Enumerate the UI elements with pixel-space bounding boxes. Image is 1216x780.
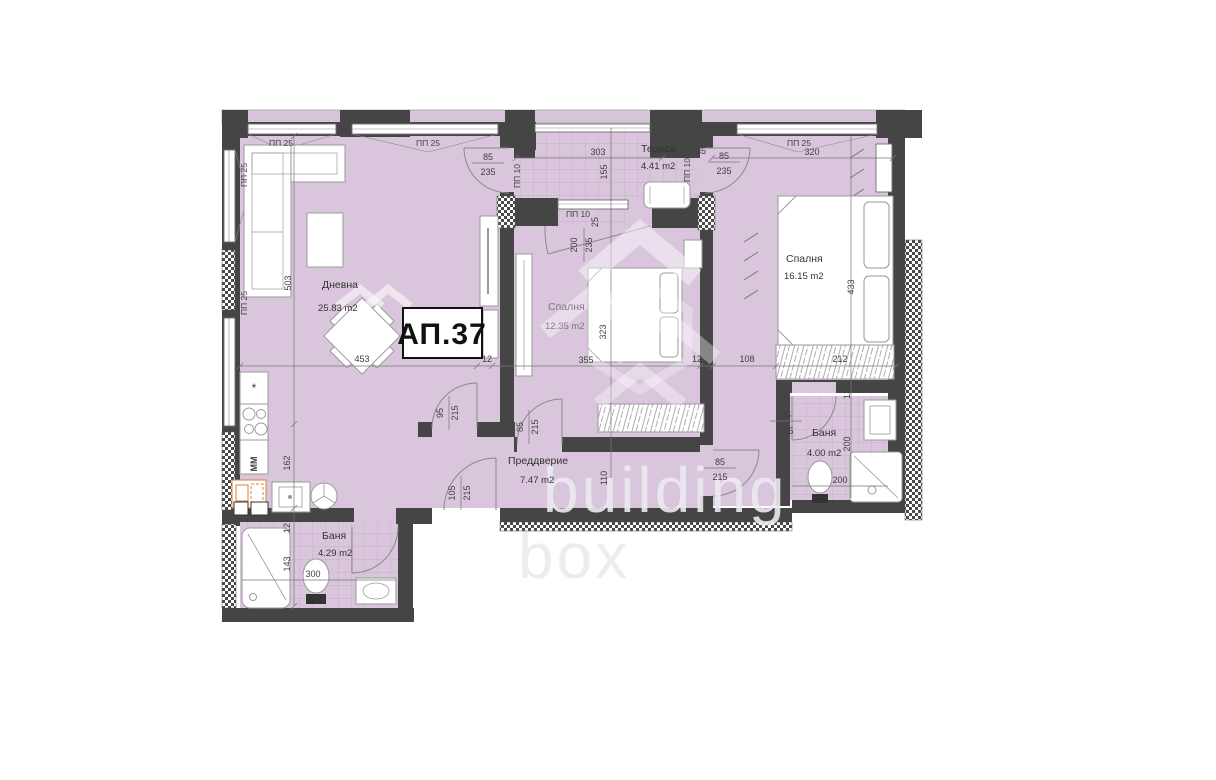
wardrobe-bedroom2 [598,404,704,432]
dim-155: 155 [599,164,609,179]
door-width-85: 85 [715,457,725,467]
door-width-105: 105 [447,485,457,500]
dim-303: 303 [590,147,605,157]
top-ledge [222,110,905,123]
pier-top-left-corner [222,110,248,138]
bath1-name: Баня [812,427,836,439]
dim-110: 110 [599,471,609,485]
wall-bath2-right [398,514,413,622]
kitchen-cabinet [251,502,268,515]
bath2-toilet-tank [306,594,326,604]
door-width-85: 85 [515,422,525,432]
dim-200: 200 [842,436,852,451]
insulation-right-center-block [698,196,715,230]
pp10-label: ПП 10 [566,209,590,219]
opening-hall-bedroom2 [517,437,562,452]
bath1-area: 4.00 m2 [807,448,841,459]
watermark-text-line1: building [543,454,788,526]
dim-143: 143 [282,556,292,571]
bedroom2-name: Спалня [548,301,585,313]
fridge-mark: * [252,381,257,395]
bedroom1-name: Спалня [786,253,823,265]
wall-hall-stub [418,422,432,437]
kitchen-cabinet [234,502,248,515]
kitchen-sink-drain [289,496,292,499]
pp25-label: ПП 25 [239,163,249,187]
hall-name: Преддверие [508,455,568,467]
window-terrace-pp10 [558,200,628,209]
door-height-235: 235 [480,167,495,177]
wall-terrace-bottom-left [514,198,558,226]
opening-hall-bath2 [354,508,396,522]
insulation-right [905,240,922,520]
dim-25: 25 [590,217,600,227]
bath1-toilet [808,461,832,493]
dim-162: 162 [282,455,292,470]
dim-453: 453 [354,354,369,364]
door-height-215: 215 [462,485,472,500]
dim-320: 320 [804,147,819,157]
hall-area: 7.47 m2 [520,475,554,486]
floor-plan-drawing: building box АП.37 Дневна 25.83 m2 Терас… [0,0,1216,780]
dishwasher-label: ММ [249,457,259,472]
pillow [864,202,889,268]
pp25-label: ПП 25 [239,291,249,315]
opening-living-hall [432,422,477,437]
dim-12: 12 [482,354,492,364]
bath2-sink [356,578,396,604]
door-height-215: 215 [778,426,793,436]
dim-503: 503 [283,275,293,290]
opening-passage-bath1 [792,382,836,393]
ac-unit [644,182,690,208]
dim-323: 323 [598,324,608,339]
bath1-toilet-tank [812,494,828,503]
door-width-85: 85 [483,152,493,162]
wall-bath2-bottom [222,608,414,622]
pp25-label: ПП 25 [269,138,293,148]
dim-12: 12 [842,389,852,399]
dim-35: 35 [696,146,706,156]
dim-200: 200 [569,237,579,252]
dim-108: 108 [739,354,754,364]
window-left-1 [224,150,235,242]
dim-433: 433 [846,279,856,294]
door-height-215: 215 [530,419,540,434]
pillow [864,276,889,342]
dim-355: 355 [578,355,593,365]
dim-200: 200 [832,475,847,485]
dim-12: 12 [282,523,292,533]
door-width-95: 95 [435,408,445,418]
pp25-label: ПП 25 [416,138,440,148]
insulation-bath2-left [222,524,236,608]
wall-terrace-left-block [514,122,536,150]
opening-entry-door [432,508,500,522]
bath2-area: 4.29 m2 [318,548,352,559]
apartment-number: АП.37 [397,318,487,351]
living-name: Дневна [322,279,358,291]
door-height-235: 235 [716,166,731,176]
bedroom2-area: 12.35 m2 [545,321,585,332]
door-width-85: 85 [719,151,729,161]
coffee-table [307,213,343,267]
bath2-name: Баня [322,530,346,542]
door-height-215: 215 [450,405,460,420]
floor-plan-page: building box АП.37 Дневна 25.83 m2 Терас… [0,0,1216,780]
watermark-text-line2: box [518,520,630,592]
insulation-left-1 [222,250,235,310]
terrace-name: Тераса [641,143,676,155]
apartment-badge: АП.37 [397,308,487,358]
door-height-215: 215 [712,472,727,482]
insulation-center-block [497,196,515,228]
living-area: 25.83 m2 [318,303,358,314]
dim-235: 235 [584,237,594,252]
window-left-2 [224,318,235,426]
dim-300: 300 [305,569,320,579]
radiator-bedroom1 [876,144,892,192]
dim-12: 12 [692,354,702,364]
dim-212: 212 [832,354,847,364]
bedroom1-area: 16.15 m2 [784,271,824,282]
pp10-label: ПП 10 [512,164,522,188]
pp10-label: ПП 10 [682,158,692,182]
sofa-left-section [244,145,291,297]
door-width-85: 85 [781,410,791,420]
terrace-area: 4.41 m2 [641,161,675,172]
